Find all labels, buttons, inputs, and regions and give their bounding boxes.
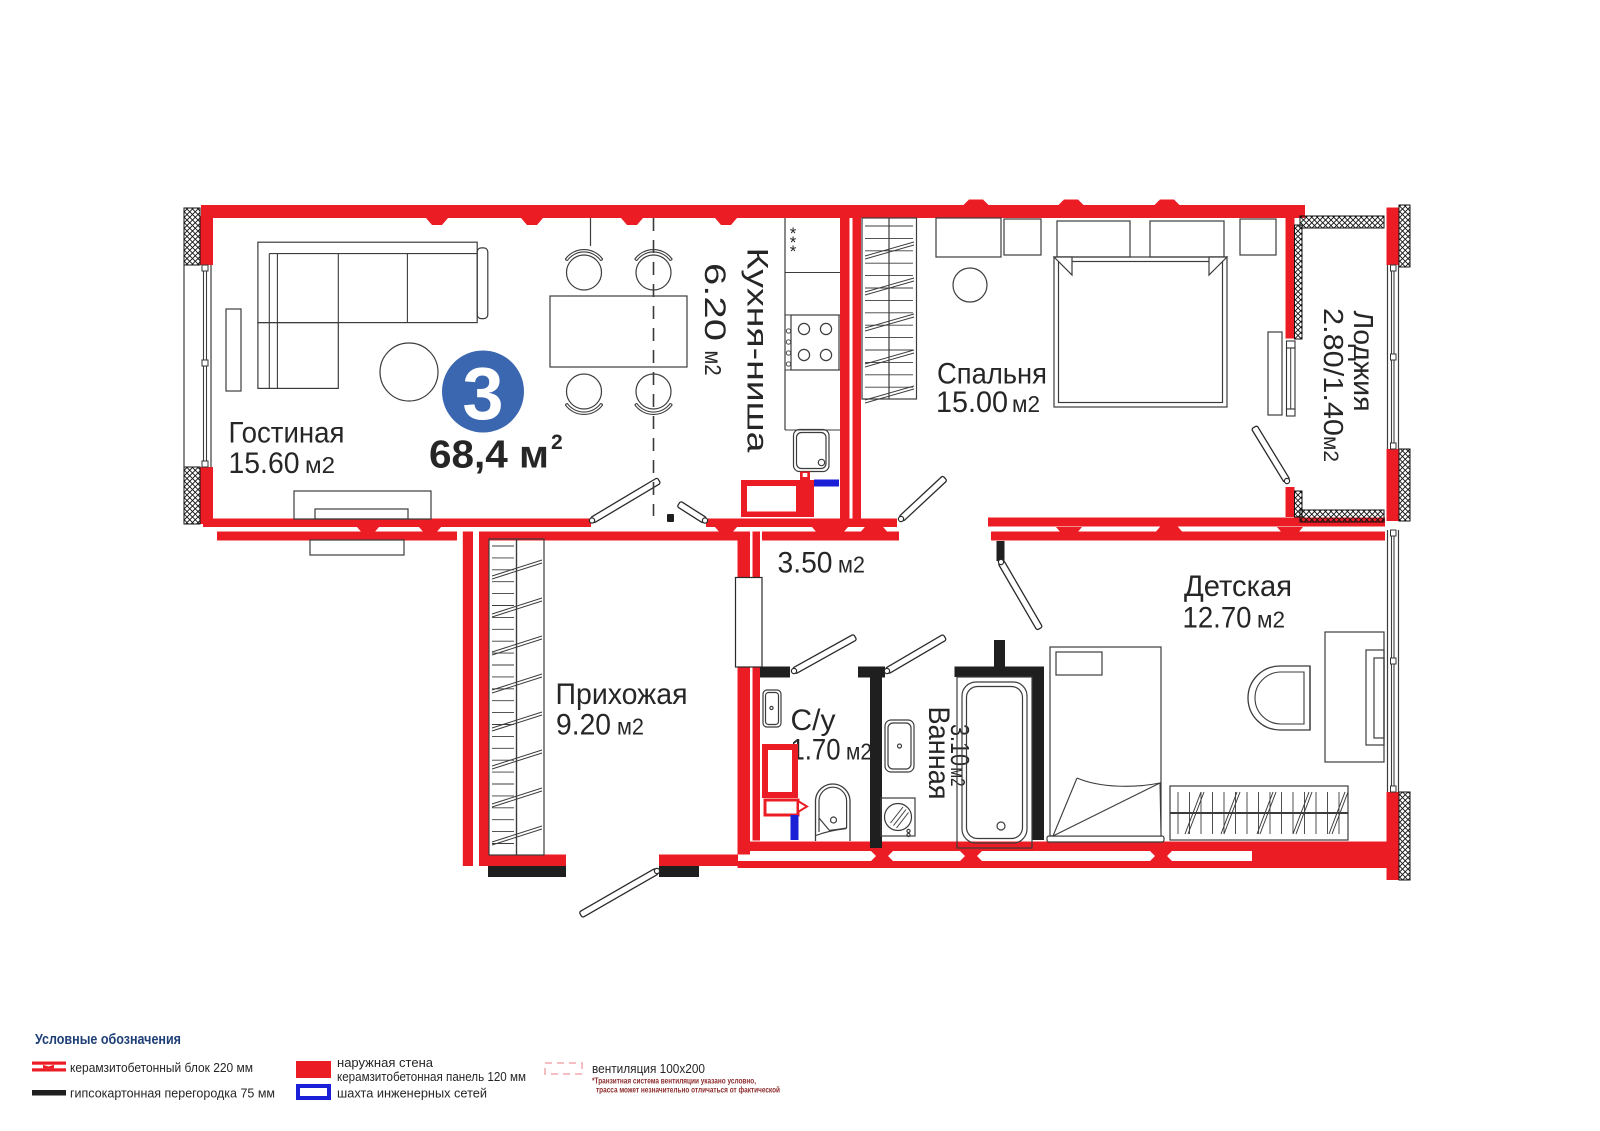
svg-text:гипсокартонная перегородка 75: гипсокартонная перегородка 75 мм xyxy=(70,1086,275,1101)
svg-text:Лоджия: Лоджия xyxy=(1348,311,1379,412)
svg-text:трасса может незначительно отл: трасса может незначительно отличаться от… xyxy=(596,1086,780,1095)
svg-text:68,4 м: 68,4 м xyxy=(429,434,549,477)
svg-text:3.10: 3.10 xyxy=(945,724,975,766)
svg-text:м2: м2 xyxy=(846,739,872,765)
svg-text:м2: м2 xyxy=(305,452,335,478)
svg-text:м2: м2 xyxy=(838,552,865,578)
svg-text:наружная стена: наружная стена xyxy=(337,1055,434,1070)
svg-text:керамзитобетонный блок 220 мм: керамзитобетонный блок 220 мм xyxy=(70,1060,253,1075)
svg-text:Гостиная: Гостиная xyxy=(229,417,345,450)
svg-text:3.50: 3.50 xyxy=(778,547,833,580)
svg-text:м2: м2 xyxy=(1257,607,1285,633)
svg-text:12.70: 12.70 xyxy=(1183,602,1252,635)
svg-text:15.60: 15.60 xyxy=(229,447,300,480)
svg-text:Кухня-ниша: Кухня-ниша xyxy=(741,248,774,453)
svg-text:керамзитобетонная панель 120 м: керамзитобетонная панель 120 мм xyxy=(337,1069,526,1084)
svg-text:Прихожая: Прихожая xyxy=(556,678,688,711)
svg-text:6.20: 6.20 xyxy=(698,263,731,341)
svg-text:м2: м2 xyxy=(1319,436,1342,462)
svg-text:9.20: 9.20 xyxy=(556,709,611,742)
svg-text:С/у: С/у xyxy=(791,704,836,737)
svg-text:Условные обозначения: Условные обозначения xyxy=(35,1031,181,1048)
svg-text:Детская: Детская xyxy=(1184,570,1292,603)
svg-text:3: 3 xyxy=(462,352,503,435)
svg-text:2.80/1.40: 2.80/1.40 xyxy=(1318,308,1349,436)
svg-text:2: 2 xyxy=(551,431,563,454)
svg-text:м2: м2 xyxy=(700,351,726,376)
svg-text:15.00: 15.00 xyxy=(936,386,1008,419)
svg-text:шахта инженерных сетей: шахта инженерных сетей xyxy=(337,1086,487,1101)
svg-text:м2: м2 xyxy=(617,714,644,740)
svg-text:вентиляция 100х200: вентиляция 100х200 xyxy=(592,1061,705,1076)
svg-text:*Транзитная система вентиляции: *Транзитная система вентиляции указано у… xyxy=(592,1077,756,1086)
svg-text:*: * xyxy=(790,242,797,261)
svg-text:м2: м2 xyxy=(1012,391,1040,417)
